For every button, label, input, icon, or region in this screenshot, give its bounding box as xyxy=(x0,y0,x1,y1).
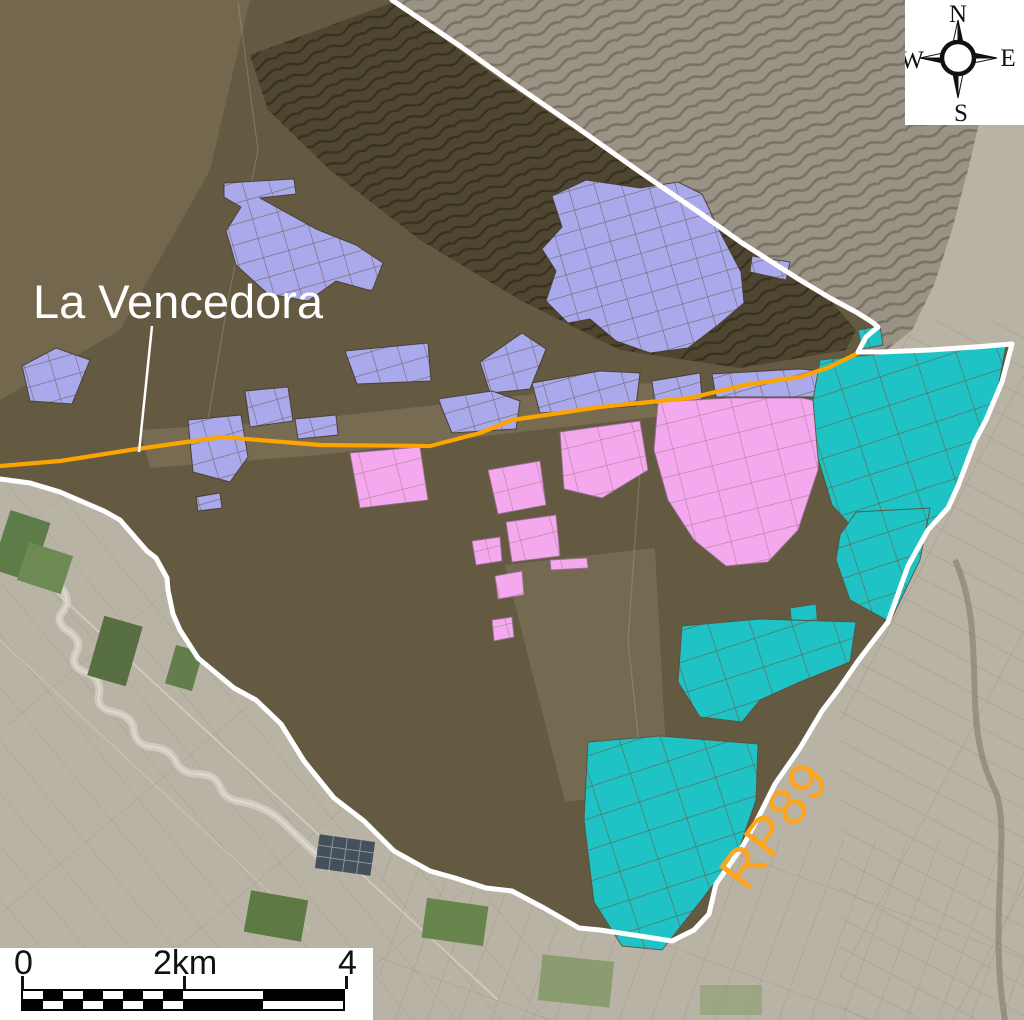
region-label: La Vencedora xyxy=(33,275,324,328)
scale-bar: 0 2km 4 xyxy=(0,948,373,1020)
scale-tick xyxy=(183,976,186,989)
compass-south-label: S xyxy=(954,100,968,125)
compass-north-label: N xyxy=(949,1,967,28)
map-canvas: La Vencedora RP89 xyxy=(0,0,1024,1020)
parcel xyxy=(295,415,338,439)
compass-rose-icon: N E S W xyxy=(905,0,1024,125)
parcel xyxy=(506,515,560,562)
parcel xyxy=(245,387,293,427)
parcel xyxy=(550,558,588,570)
scale-bar-row-bottom xyxy=(23,1001,343,1009)
compass-east-label: E xyxy=(1000,45,1015,72)
parcel xyxy=(488,461,546,514)
parcel xyxy=(492,617,514,641)
compass-west-label: W xyxy=(905,47,924,74)
parcel xyxy=(350,447,428,508)
compass-circle xyxy=(942,42,974,74)
compass-box: N E S W xyxy=(905,0,1024,125)
scale-tick xyxy=(345,976,348,989)
parcel xyxy=(472,537,502,565)
scale-tick xyxy=(21,976,24,989)
parcel xyxy=(495,571,524,599)
scale-bar-row-top xyxy=(23,991,343,1001)
scale-bar-checker xyxy=(21,989,345,1011)
map-figure: La Vencedora RP89 N E S W 0 2km 4 xyxy=(0,0,1024,1020)
parcel xyxy=(438,391,520,433)
